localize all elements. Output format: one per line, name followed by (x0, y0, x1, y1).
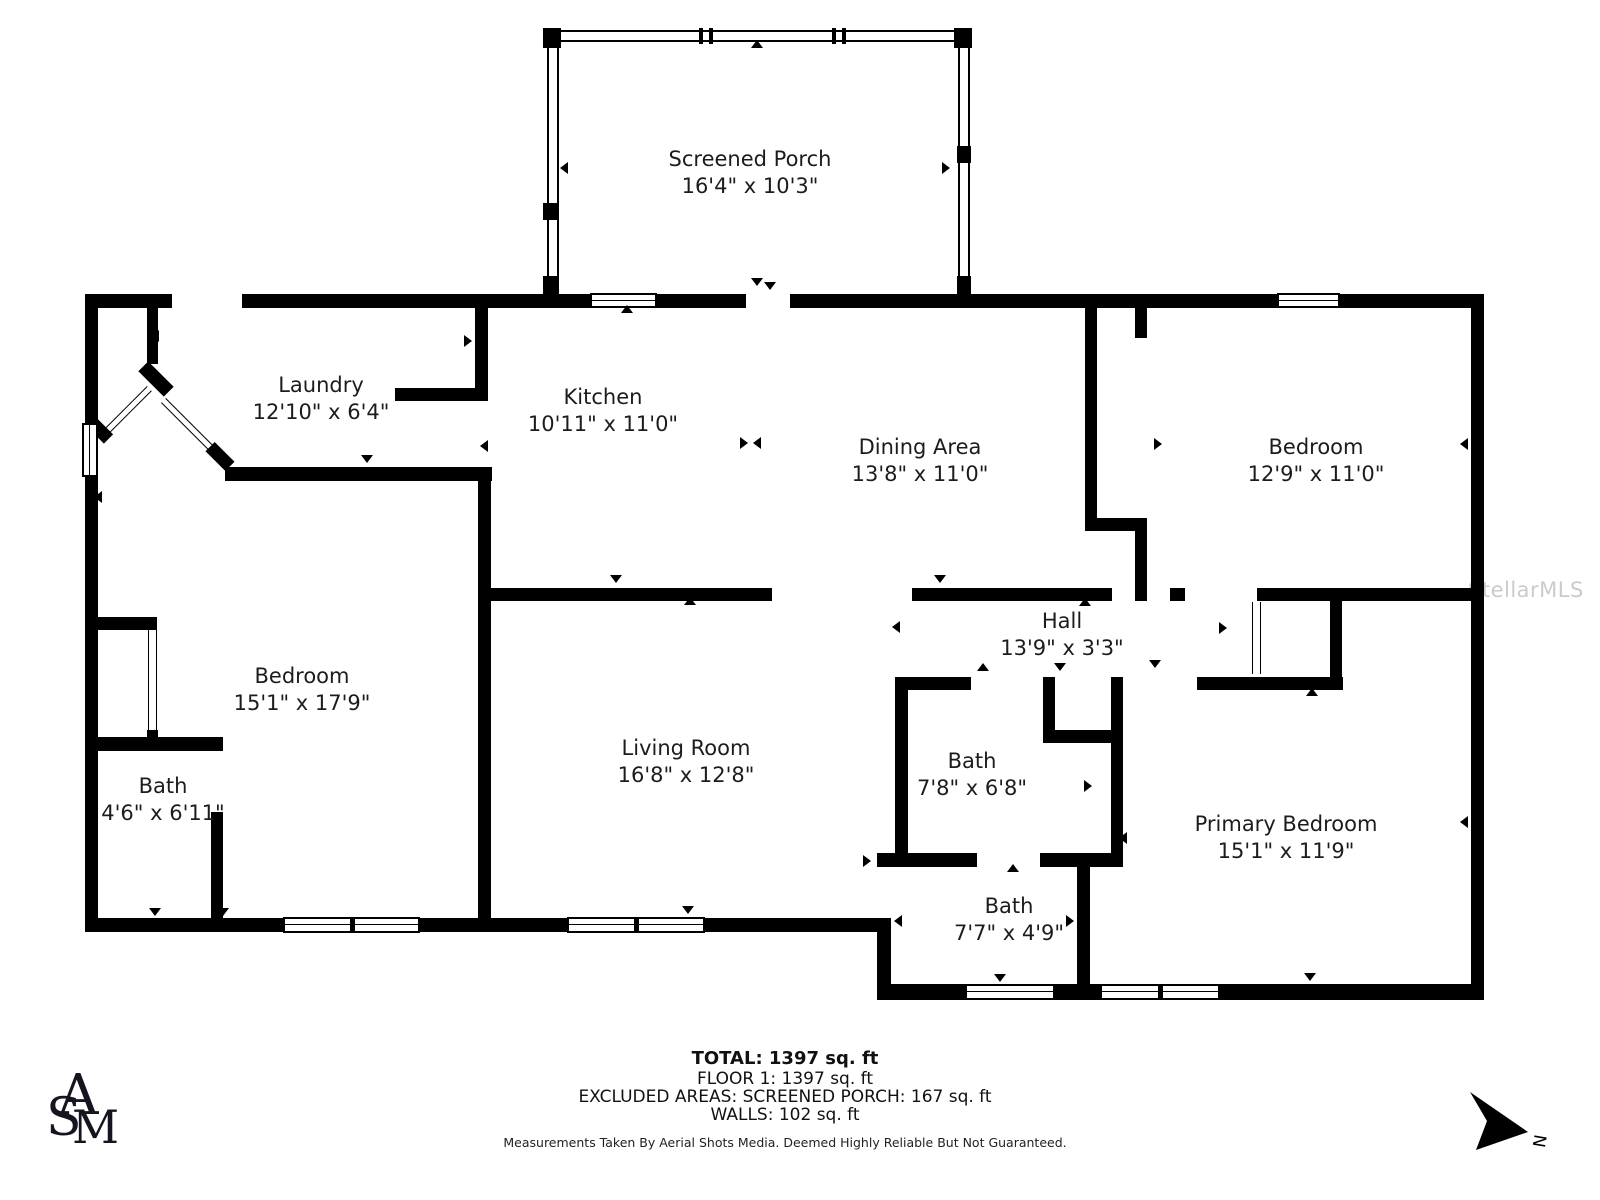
room-name: Hall (1000, 608, 1123, 635)
room-name: Primary Bedroom (1195, 811, 1378, 838)
door-arrow-icon (146, 736, 158, 744)
porch-post (543, 28, 561, 48)
door-arrow-icon (94, 491, 102, 503)
porch-post (543, 276, 558, 294)
room-dimensions: 15'1" x 17'9" (234, 690, 371, 717)
aerial-shots-media-logo: A S M (46, 1068, 136, 1163)
wall (225, 467, 492, 481)
door-arrow-icon (892, 621, 900, 633)
room-label: Screened Porch16'4" x 10'3" (669, 146, 832, 200)
door-arrow-icon (684, 597, 696, 605)
room-name: Laundry (253, 372, 390, 399)
wall (85, 294, 172, 308)
wall (395, 388, 488, 401)
room-label: Bath7'8" x 6'8" (917, 748, 1027, 802)
window (1277, 293, 1340, 308)
wall (211, 737, 223, 751)
window-mullion (634, 917, 639, 933)
door-arrow-icon (934, 575, 946, 583)
wall (85, 918, 283, 932)
north-arrow-icon: N (1462, 1088, 1552, 1158)
floor1-area-text: FLOOR 1: 1397 sq. ft (385, 1070, 1185, 1088)
wall (1135, 518, 1147, 601)
wall (1330, 588, 1342, 690)
stellar-mls-watermark: StellarMLS (1468, 578, 1584, 602)
porch-post (709, 28, 713, 44)
door-arrow-icon (149, 908, 161, 916)
door-arrow-icon (1460, 816, 1468, 828)
door-arrow-icon (151, 330, 159, 342)
area-summary: TOTAL: 1397 sq. ft FLOOR 1: 1397 sq. ft … (385, 1048, 1185, 1124)
wall (97, 617, 157, 630)
wall (705, 918, 891, 932)
window (283, 917, 420, 933)
room-label: Bedroom15'1" x 17'9" (234, 663, 371, 717)
room-dimensions: 13'8" x 11'0" (852, 461, 989, 488)
porch-post (957, 146, 971, 163)
wall (491, 588, 772, 601)
svg-text:N: N (1528, 1133, 1550, 1149)
room-name: Bath (917, 748, 1027, 775)
porch-screen-wall (547, 30, 559, 295)
wall (1085, 308, 1097, 518)
room-dimensions: 16'4" x 10'3" (669, 173, 832, 200)
wall (242, 294, 590, 308)
room-dimensions: 7'7" x 4'9" (954, 920, 1064, 947)
room-dimensions: 10'11" x 11'0" (528, 411, 678, 438)
wall (1111, 677, 1123, 853)
door-arrow-icon (480, 440, 488, 452)
excluded-area-text: EXCLUDED AREAS: SCREENED PORCH: 167 sq. … (385, 1088, 1185, 1106)
window-mullion (350, 917, 355, 933)
door-arrow-icon (1084, 780, 1092, 792)
room-dimensions: 4'6" x 6'11" (101, 800, 224, 827)
room-label: Bedroom12'9" x 11'0" (1248, 434, 1385, 488)
window (965, 984, 1055, 1000)
closet-door-line (1252, 602, 1261, 674)
wall (1471, 294, 1484, 1000)
window (567, 917, 705, 933)
wall (1257, 588, 1484, 601)
door-arrow-icon (464, 335, 472, 347)
room-dimensions: 16'8" x 12'8" (618, 762, 755, 789)
window-sash-line (1279, 300, 1338, 301)
door-arrow-icon (994, 974, 1006, 982)
door-arrow-icon (217, 908, 229, 916)
room-label: Primary Bedroom15'1" x 11'9" (1195, 811, 1378, 865)
disclaimer-text: Measurements Taken By Aerial Shots Media… (385, 1135, 1185, 1150)
room-dimensions: 13'9" x 3'3" (1000, 635, 1123, 662)
door-arrow-icon (560, 162, 568, 174)
window-mullion (1158, 984, 1163, 1000)
wall (657, 294, 746, 308)
door-arrow-icon (1119, 832, 1127, 844)
room-label: Hall13'9" x 3'3" (1000, 608, 1123, 662)
door-arrow-icon (740, 437, 748, 449)
door-arrow-icon (1054, 663, 1066, 671)
wall (1220, 984, 1484, 1000)
room-label: Bath4'6" x 6'11" (101, 773, 224, 827)
porch-post (832, 28, 836, 44)
wall (1197, 677, 1343, 690)
room-label: Laundry12'10" x 6'4" (253, 372, 390, 426)
door-arrow-icon (751, 278, 763, 286)
room-label: Bath7'7" x 4'9" (954, 893, 1064, 947)
walls-area-text: WALLS: 102 sq. ft (385, 1106, 1185, 1124)
door-arrow-icon (1460, 438, 1468, 450)
door-arrow-icon (1066, 915, 1074, 927)
door-arrow-icon (682, 906, 694, 914)
door-arrow-icon (764, 282, 776, 290)
wall (877, 984, 970, 1000)
room-label: Dining Area13'8" x 11'0" (852, 434, 989, 488)
wall (475, 308, 488, 398)
porch-post (699, 28, 703, 44)
door-arrow-icon (1304, 973, 1316, 981)
room-name: Kitchen (528, 384, 678, 411)
room-name: Bath (954, 893, 1064, 920)
wall (1135, 308, 1147, 338)
porch-post (842, 28, 846, 44)
room-name: Living Room (618, 735, 755, 762)
door-arrow-icon (863, 855, 871, 867)
door-arrow-icon (1154, 438, 1162, 450)
wall (85, 294, 98, 424)
wall (420, 918, 567, 932)
door-arrow-icon (621, 305, 633, 313)
porch-post (954, 28, 972, 48)
wall (478, 481, 491, 918)
door-arrow-icon (610, 575, 622, 583)
wall (1340, 294, 1484, 308)
closet-door-line (148, 630, 157, 730)
total-area-text: TOTAL: 1397 sq. ft (385, 1048, 1185, 1070)
room-name: Bath (101, 773, 224, 800)
porch-post (957, 276, 971, 294)
door-arrow-icon (753, 437, 761, 449)
wall (895, 677, 908, 857)
door-arrow-icon (894, 915, 902, 927)
door-arrow-icon (751, 40, 763, 48)
room-dimensions: 12'9" x 11'0" (1248, 461, 1385, 488)
room-name: Screened Porch (669, 146, 832, 173)
window (82, 423, 98, 477)
entry-door-line (103, 386, 152, 435)
door-arrow-icon (1219, 622, 1227, 634)
door-arrow-icon (897, 780, 905, 792)
room-name: Dining Area (852, 434, 989, 461)
room-dimensions: 12'10" x 6'4" (253, 399, 390, 426)
window-sash-line (592, 300, 655, 301)
wall (790, 294, 1277, 308)
door-arrow-icon (977, 663, 989, 671)
wall (877, 853, 977, 867)
window-sash-line (967, 991, 1053, 992)
door-arrow-icon (1306, 688, 1318, 696)
logo-letter-m: M (72, 1104, 119, 1150)
room-dimensions: 7'8" x 6'8" (917, 775, 1027, 802)
door-arrow-icon (479, 855, 487, 867)
window (1100, 984, 1220, 1000)
wall (211, 812, 223, 918)
room-name: Bedroom (234, 663, 371, 690)
room-name: Bedroom (1248, 434, 1385, 461)
door-arrow-icon (1079, 598, 1091, 606)
door-arrow-icon (942, 162, 950, 174)
door-arrow-icon (1007, 864, 1019, 872)
door-arrow-icon (361, 455, 373, 463)
wall (85, 477, 98, 918)
wall (1170, 588, 1185, 601)
room-label: Kitchen10'11" x 11'0" (528, 384, 678, 438)
room-label: Living Room16'8" x 12'8" (618, 735, 755, 789)
porch-post (543, 203, 558, 220)
door-arrow-icon (1149, 660, 1161, 668)
wall (1077, 853, 1090, 1000)
entry-door-line (161, 398, 215, 452)
floor-plan-canvas: Screened Porch16'4" x 10'3"Laundry12'10"… (0, 0, 1600, 1200)
room-dimensions: 15'1" x 11'9" (1195, 838, 1378, 865)
window-sash-line (89, 425, 90, 475)
